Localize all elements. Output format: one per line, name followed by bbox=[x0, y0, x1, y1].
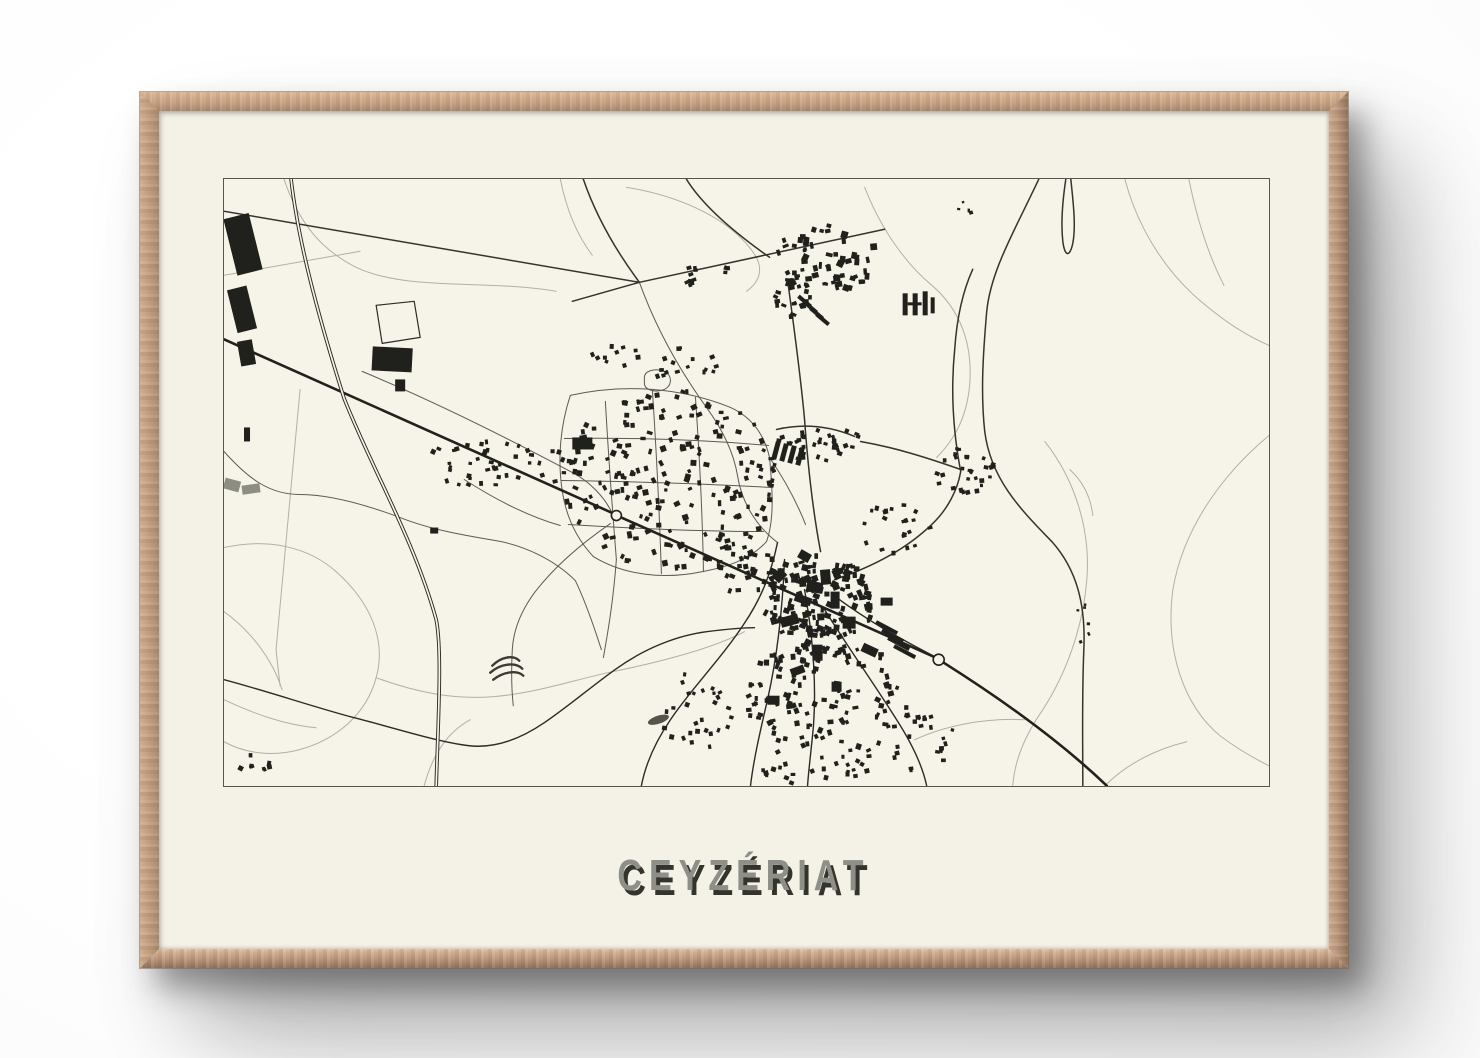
poster-frame: CEYZÉRIAT bbox=[140, 92, 1348, 968]
town-map-svg bbox=[224, 179, 1269, 786]
wall-background: CEYZÉRIAT bbox=[0, 0, 1480, 1058]
title-row: CEYZÉRIAT bbox=[159, 857, 1329, 896]
frame-rail-right bbox=[1329, 92, 1348, 968]
map-print bbox=[223, 178, 1270, 787]
frame-rail-left bbox=[140, 92, 159, 968]
frame-rail-top bbox=[140, 92, 1348, 111]
frame-rail-bottom bbox=[140, 949, 1348, 968]
poster-title: CEYZÉRIAT bbox=[617, 852, 870, 902]
poster-mat: CEYZÉRIAT bbox=[159, 111, 1329, 949]
